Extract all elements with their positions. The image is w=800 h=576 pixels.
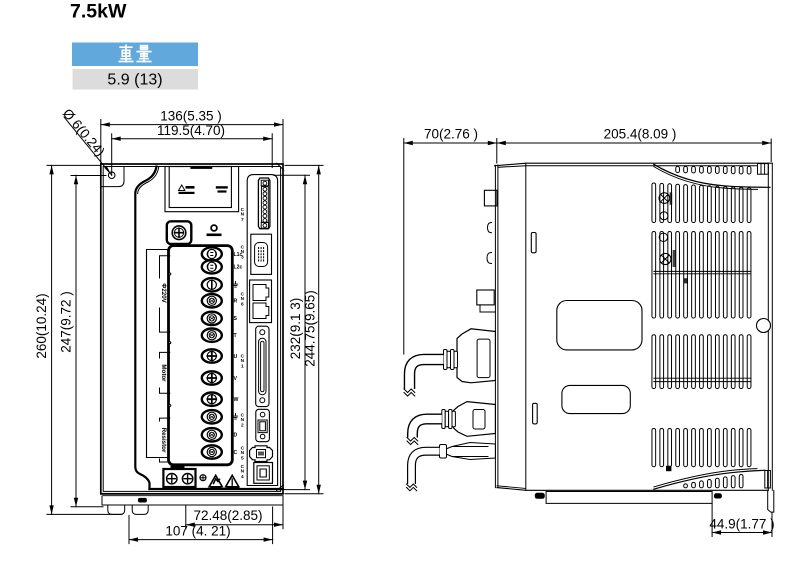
svg-text:N: N [241,358,245,364]
svg-text:Φ220V: Φ220V [160,283,167,303]
svg-text:N: N [241,450,245,456]
svg-text:5.9 (13): 5.9 (13) [107,72,162,89]
svg-text:6: 6 [241,301,244,307]
svg-text:244.75(9.65): 244.75(9.65) [303,290,318,367]
svg-text:C: C [234,450,238,456]
svg-text:N: N [241,296,245,302]
svg-text:247(9.72 ): 247(9.72 ) [59,291,74,353]
svg-text:205.4(8.09 ): 205.4(8.09 ) [604,127,677,142]
svg-text:44.9(1.77 ): 44.9(1.77 ) [709,517,774,532]
svg-text:136(5.35 ): 136(5.35 ) [160,109,222,124]
svg-text:107 (4. 21): 107 (4. 21) [165,524,230,539]
svg-text:L2c: L2c [234,265,243,271]
svg-text:T: T [234,333,238,339]
svg-text:N: N [241,249,245,255]
svg-text:R: R [234,299,238,305]
svg-text:4: 4 [241,474,244,480]
svg-text:119.5(4.70): 119.5(4.70) [157,123,225,138]
svg-text:7: 7 [241,217,244,223]
svg-text:U: U [234,354,238,360]
svg-text:V: V [234,376,238,382]
svg-text:260(10.24): 260(10.24) [34,293,49,358]
svg-text:232(9.1 3): 232(9.1 3) [288,298,303,360]
svg-text:Resistor: Resistor [160,428,167,453]
svg-text:Motor: Motor [160,364,167,382]
svg-text:2: 2 [241,422,244,428]
svg-text:70(2.76 ): 70(2.76 ) [424,127,478,142]
svg-text:N: N [241,417,245,423]
svg-text:7.5kW: 7.5kW [70,1,127,23]
svg-text:N: N [241,469,245,475]
svg-text:72.48(2.85): 72.48(2.85) [193,508,262,523]
svg-text:S: S [234,316,238,322]
svg-text:3: 3 [241,254,244,260]
svg-text:5: 5 [241,455,244,461]
svg-text:N: N [241,212,245,218]
svg-text:W: W [234,397,239,403]
svg-text:1: 1 [241,363,244,369]
svg-text:D: D [234,433,238,439]
